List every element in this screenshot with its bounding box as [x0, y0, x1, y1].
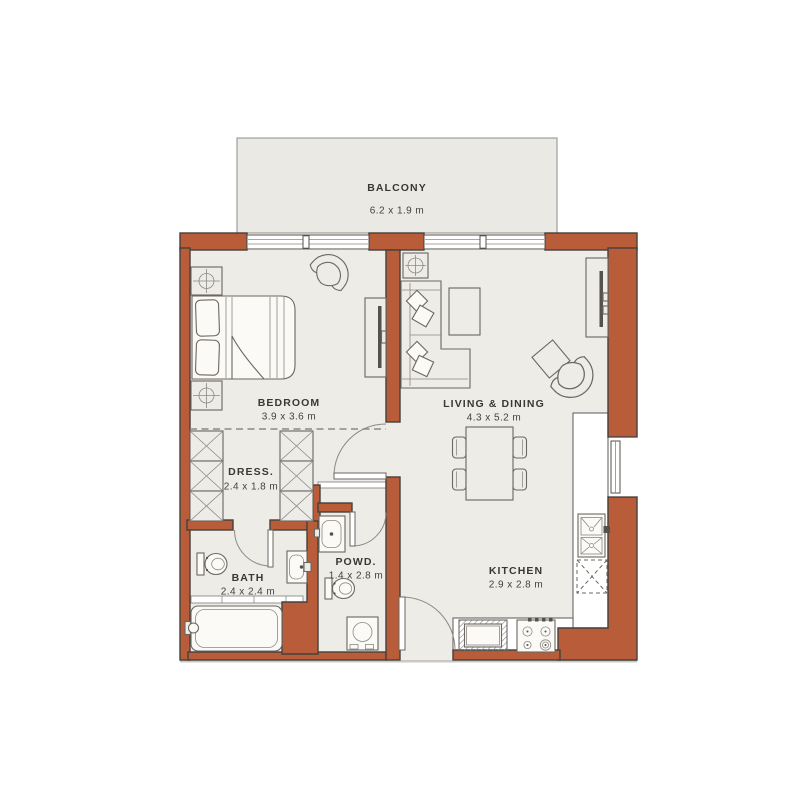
dressing-label: DRESS. [228, 466, 274, 478]
dining-table [466, 427, 513, 500]
wardrobe-left [190, 431, 223, 521]
tub-faucet [189, 623, 199, 633]
kitchen-window [609, 438, 637, 496]
bath-toilet [197, 553, 227, 575]
dressing-dims: 2.4 x 1.8 m [224, 482, 278, 493]
bedroom-label: BEDROOM [258, 397, 321, 409]
balcony-dims: 6.2 x 1.9 m [370, 206, 424, 217]
bath-dims: 2.4 x 2.4 m [221, 587, 275, 598]
balcony-window-left [247, 235, 369, 249]
bedroom-tv-console [365, 298, 386, 377]
floor-plan-canvas [0, 0, 800, 800]
stove [517, 618, 555, 653]
bath-sink [287, 551, 311, 583]
floor-plan: BALCONY 6.2 x 1.9 m BEDROOM 3.9 x 3.6 m … [0, 0, 800, 800]
balcony-window-right [424, 235, 545, 249]
powder-sink [315, 516, 346, 552]
nightstand-bottom [191, 381, 222, 410]
bath-label: BATH [232, 572, 265, 584]
living-dims: 4.3 x 5.2 m [467, 413, 521, 424]
fridge [459, 620, 507, 651]
bathtub [185, 606, 282, 651]
side-table-lamp [403, 253, 428, 278]
washing-machine [347, 617, 378, 650]
kitchen-sink [578, 514, 610, 557]
kitchen-label: KITCHEN [489, 565, 543, 577]
nightstand-top [191, 267, 222, 295]
kitchen-faucet [604, 526, 611, 533]
powder-dims: 1.4 x 2.8 m [329, 571, 383, 582]
coffee-table [449, 288, 480, 335]
wardrobe-right [280, 431, 313, 521]
living-label: LIVING & DINING [443, 398, 545, 410]
kitchen-dims: 2.9 x 2.8 m [489, 580, 543, 591]
powder-label: POWD. [335, 556, 376, 568]
bedroom-dims: 3.9 x 3.6 m [262, 412, 316, 423]
corridor-threshold [318, 482, 386, 488]
balcony-label: BALCONY [367, 182, 427, 194]
bed [192, 296, 295, 379]
living-tv-console [586, 258, 608, 337]
